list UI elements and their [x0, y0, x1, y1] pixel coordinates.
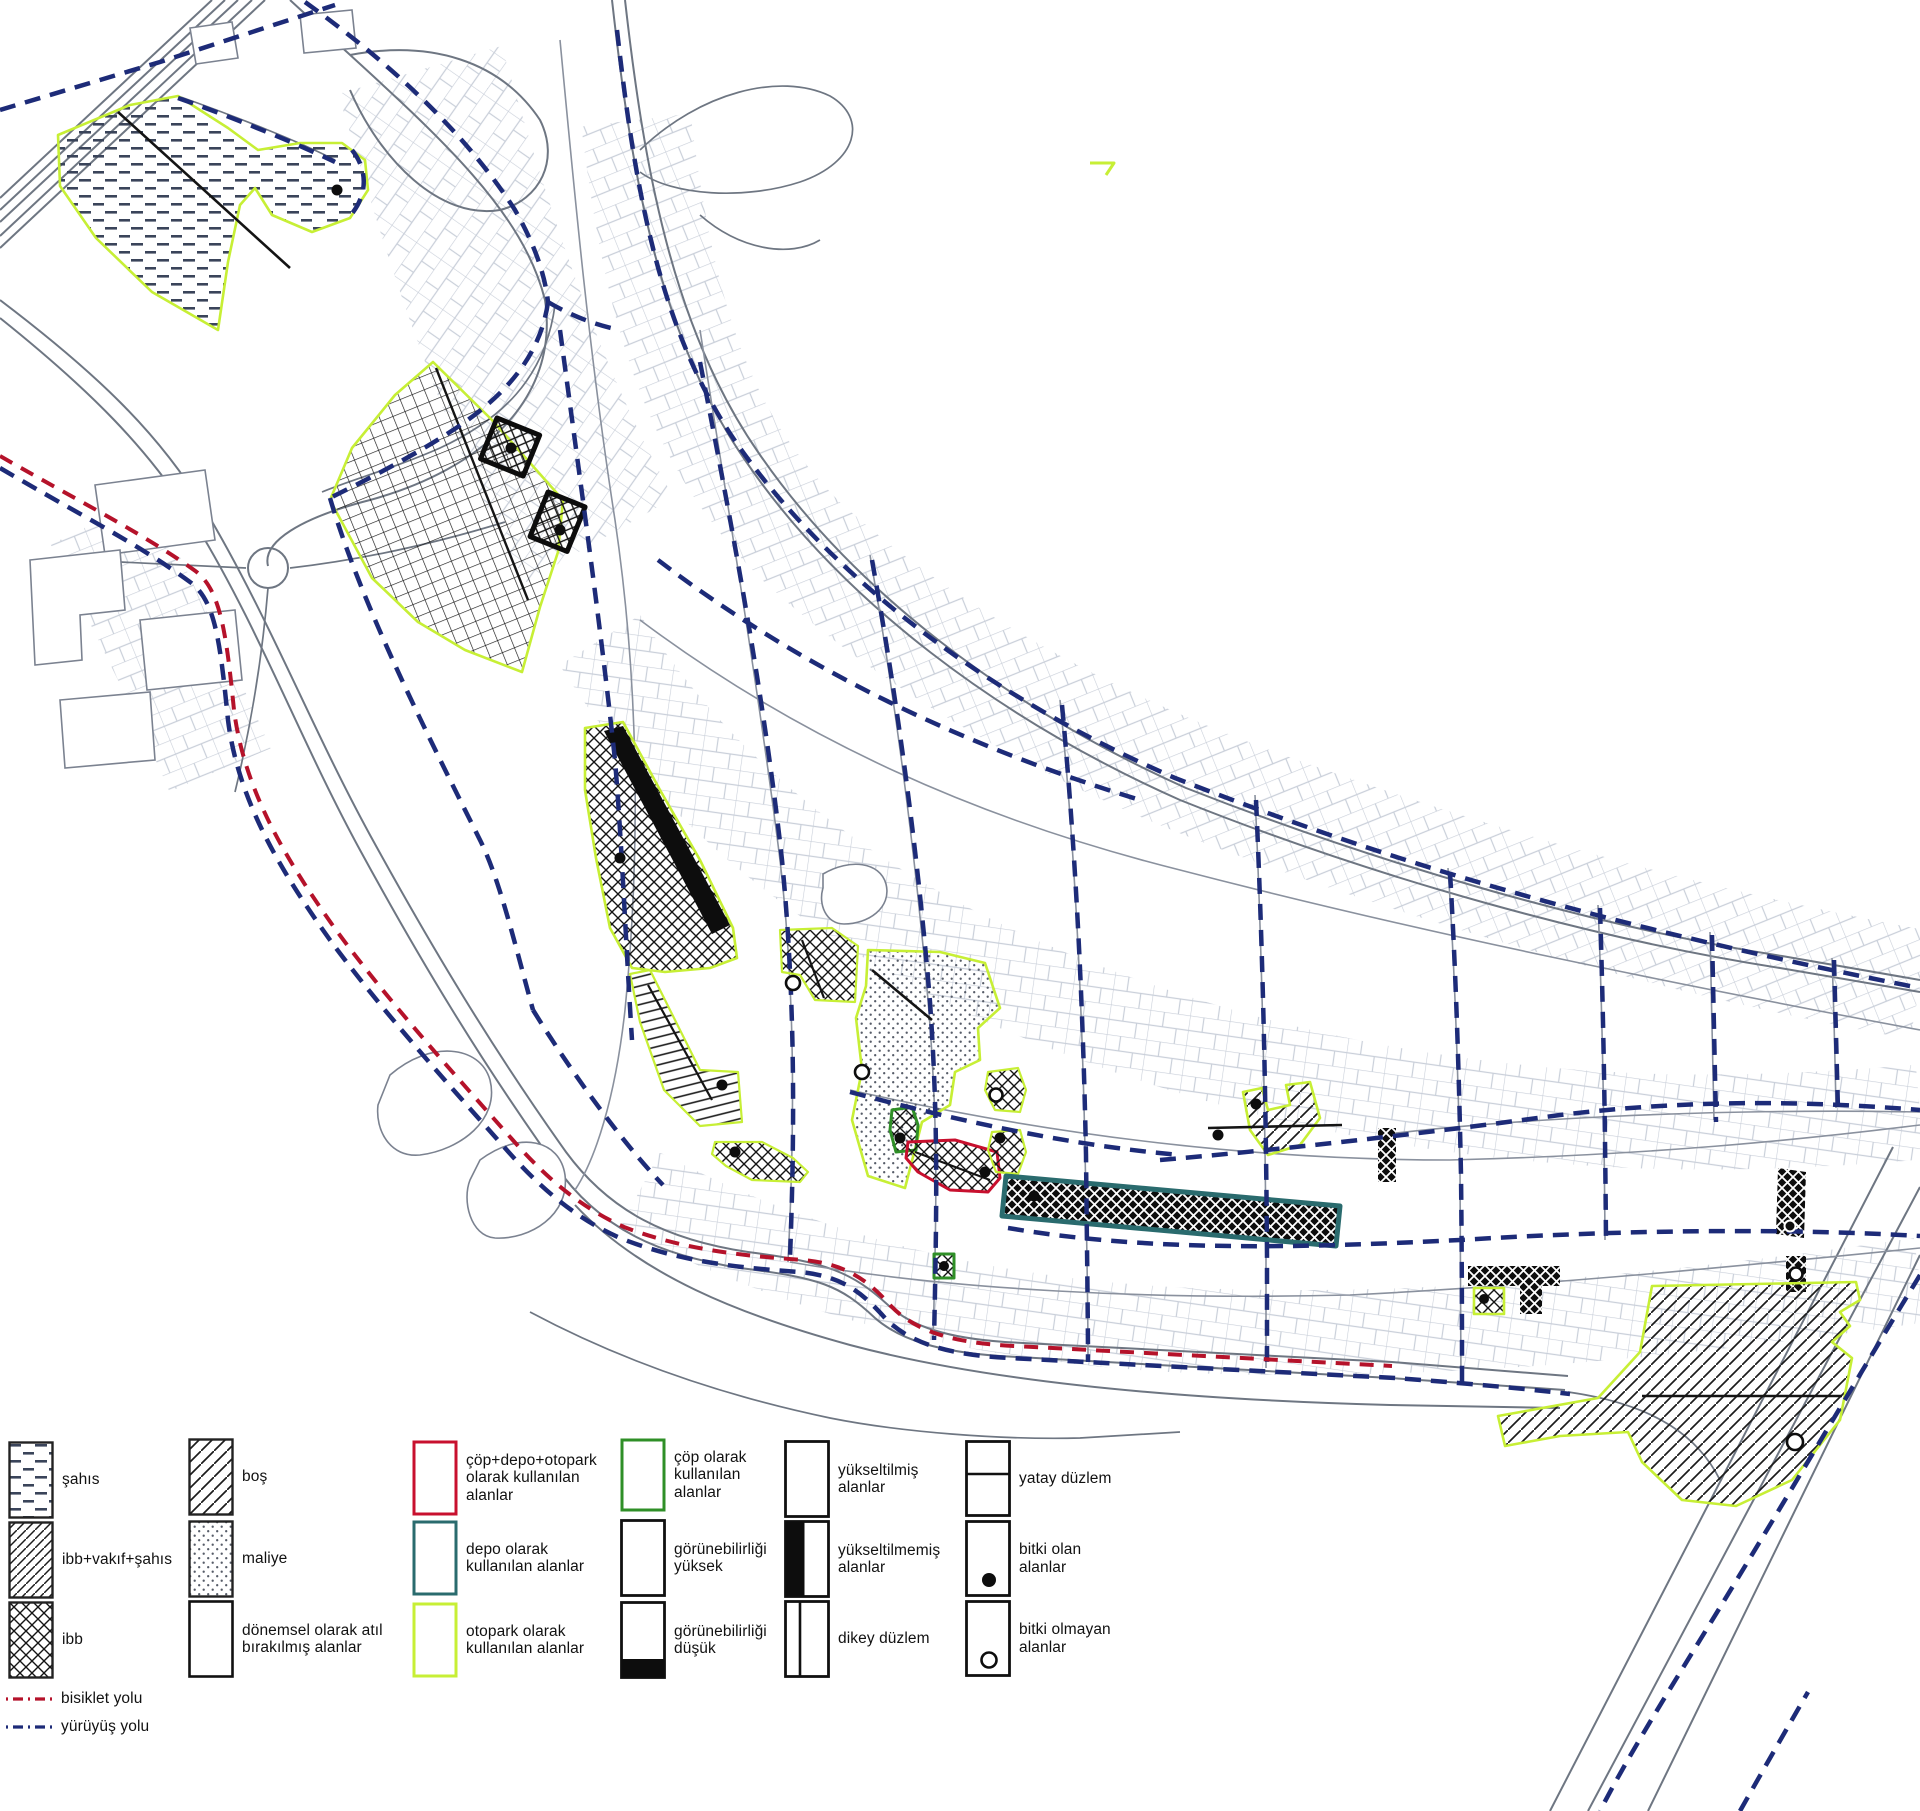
- walking-path: [0, 5, 335, 110]
- sahis-area: [58, 96, 368, 330]
- lime-outline-swatch-icon: [412, 1602, 458, 1678]
- legend-label: çöp+depo+otopark olarak kullanılan alanl…: [466, 1440, 628, 1516]
- legend-label: bitki olan alanlar: [1019, 1520, 1129, 1597]
- planted-dot: [332, 185, 343, 196]
- diagonal-hatch-swatch-icon: [188, 1438, 234, 1516]
- inner-streets: [560, 40, 1920, 1385]
- diagonal-hatch-dense-swatch-icon: [8, 1521, 54, 1599]
- legend-label: ibb+vakıf+şahıs: [62, 1521, 172, 1599]
- planted-dot: [1251, 1099, 1262, 1110]
- unplanted-circle: [1787, 1434, 1803, 1450]
- dot-pattern-swatch-icon: [188, 1520, 234, 1598]
- planted-dot: [717, 1080, 728, 1091]
- legend-label: çöp olarak kullanılan alanlar: [674, 1438, 784, 1512]
- legend-label: ibb: [62, 1601, 83, 1679]
- red-outline-swatch-icon: [412, 1440, 458, 1516]
- planted-dot: [506, 443, 517, 454]
- planted-dot: [1785, 1221, 1796, 1232]
- building: [190, 22, 238, 64]
- planted-dot: [1479, 1294, 1489, 1304]
- legend-label: otopark olarak kullanılan alanlar: [466, 1602, 606, 1678]
- unplanted-circle: [1790, 1268, 1803, 1281]
- hatch-wedge: [630, 970, 742, 1126]
- parking-patch: [1474, 1288, 1504, 1314]
- parking-patch: [988, 1130, 1026, 1174]
- high-visibility-swatch-icon: [620, 1519, 666, 1597]
- unplanted-circle: [990, 1089, 1003, 1102]
- teal-outline-swatch-icon: [412, 1520, 458, 1596]
- legend-label: bisiklet yolu: [61, 1686, 142, 1712]
- black-beam: [1468, 1266, 1560, 1286]
- legend-label: dönemsel olarak atıl bırakılmış alanlar: [242, 1600, 422, 1678]
- walking-path: [1740, 1692, 1808, 1811]
- planted-dot: [1029, 1191, 1040, 1202]
- planted-dot: [980, 1167, 991, 1178]
- planted-dot: [555, 525, 566, 536]
- planted-areas-swatch-icon: [965, 1520, 1011, 1597]
- park-blob: [467, 1142, 565, 1238]
- legend-label: şahıs: [62, 1441, 100, 1519]
- green-outline-swatch-icon: [620, 1438, 666, 1512]
- unplanted-circle: [786, 976, 800, 990]
- legend-label: görünebilirliği yüksek: [674, 1519, 794, 1597]
- legend-label: dikey düzlem: [838, 1600, 930, 1678]
- not-raised-areas-swatch-icon: [784, 1520, 830, 1598]
- planted-dot: [995, 1133, 1006, 1144]
- building: [60, 692, 155, 768]
- legend-label: yükseltilmemiş alanlar: [838, 1520, 973, 1598]
- urban-analysis-map-page: { "legend": { "items": [ {"label": "şahı…: [0, 0, 1920, 1811]
- empty-box-swatch-icon: [188, 1600, 234, 1678]
- horizontal-plane-swatch-icon: [965, 1440, 1011, 1517]
- planted-dot: [895, 1133, 906, 1144]
- walking-path-line-icon: [5, 1719, 53, 1735]
- black-beam-leg: [1520, 1286, 1542, 1314]
- cross-hatch-swatch-icon: [8, 1601, 54, 1679]
- planted-dot: [730, 1147, 741, 1158]
- depot-teal-strip: [1002, 1176, 1340, 1246]
- unplanted-circle: [855, 1065, 869, 1079]
- legend-label: yürüyüş yolu: [61, 1714, 149, 1740]
- lime-arrow-mark: [1090, 163, 1114, 175]
- raised-areas-swatch-icon: [784, 1440, 830, 1518]
- legend-label: boş: [242, 1438, 267, 1516]
- legend-label: görünebilirliği düşük: [674, 1601, 794, 1679]
- dash-pattern-swatch-icon: [8, 1441, 54, 1519]
- park-blob: [378, 1051, 492, 1155]
- legend-label: yükseltilmiş alanlar: [838, 1440, 948, 1518]
- planted-dot: [1213, 1130, 1224, 1141]
- unplanted-areas-swatch-icon: [965, 1600, 1011, 1677]
- planted-dot: [939, 1261, 949, 1271]
- ramp-curve: [700, 215, 820, 249]
- vertical-plane-swatch-icon: [784, 1600, 830, 1678]
- legend-label: maliye: [242, 1520, 287, 1598]
- low-visibility-swatch-icon: [620, 1601, 666, 1679]
- legend-label: depo olarak kullanılan alanlar: [466, 1520, 596, 1596]
- legend-label: yatay düzlem: [1019, 1440, 1112, 1517]
- bike-path-line-icon: [5, 1691, 53, 1707]
- planted-dot: [615, 853, 626, 864]
- legend-label: bitki olmayan alanlar: [1019, 1600, 1139, 1677]
